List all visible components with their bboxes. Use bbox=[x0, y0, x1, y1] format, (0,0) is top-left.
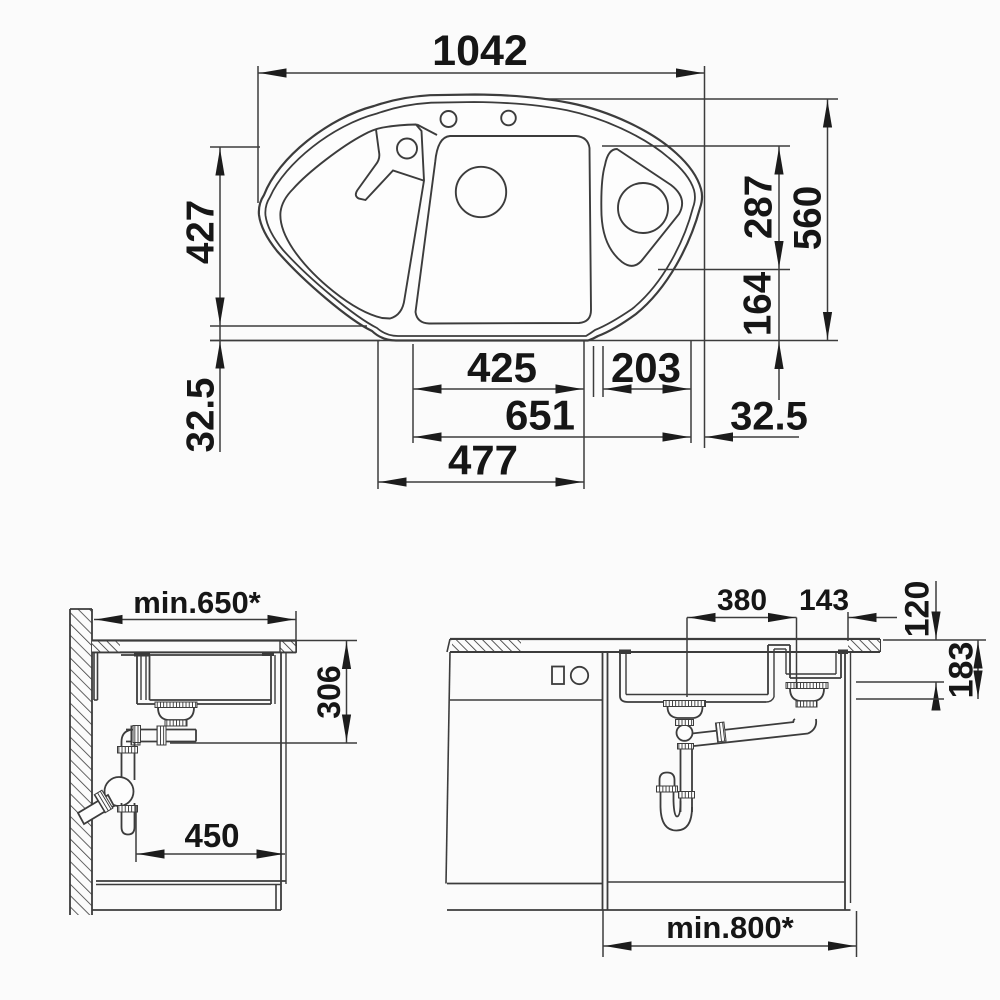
svg-text:143: 143 bbox=[799, 584, 849, 617]
svg-text:164: 164 bbox=[737, 271, 780, 336]
svg-text:1042: 1042 bbox=[432, 27, 528, 75]
svg-text:203: 203 bbox=[611, 344, 681, 391]
svg-text:min.650*: min.650* bbox=[133, 585, 261, 620]
svg-text:min.800*: min.800* bbox=[666, 910, 794, 945]
svg-text:32.5: 32.5 bbox=[730, 395, 808, 439]
svg-text:306: 306 bbox=[311, 665, 347, 718]
svg-text:183: 183 bbox=[943, 642, 981, 699]
svg-text:427: 427 bbox=[180, 200, 223, 264]
svg-text:32.5: 32.5 bbox=[180, 378, 223, 453]
svg-text:477: 477 bbox=[448, 437, 518, 484]
svg-text:560: 560 bbox=[787, 186, 830, 250]
svg-text:287: 287 bbox=[738, 175, 781, 239]
svg-text:425: 425 bbox=[467, 344, 537, 391]
svg-text:651: 651 bbox=[505, 392, 575, 439]
svg-text:120: 120 bbox=[899, 581, 937, 638]
svg-text:450: 450 bbox=[184, 817, 239, 854]
svg-text:380: 380 bbox=[717, 584, 767, 617]
